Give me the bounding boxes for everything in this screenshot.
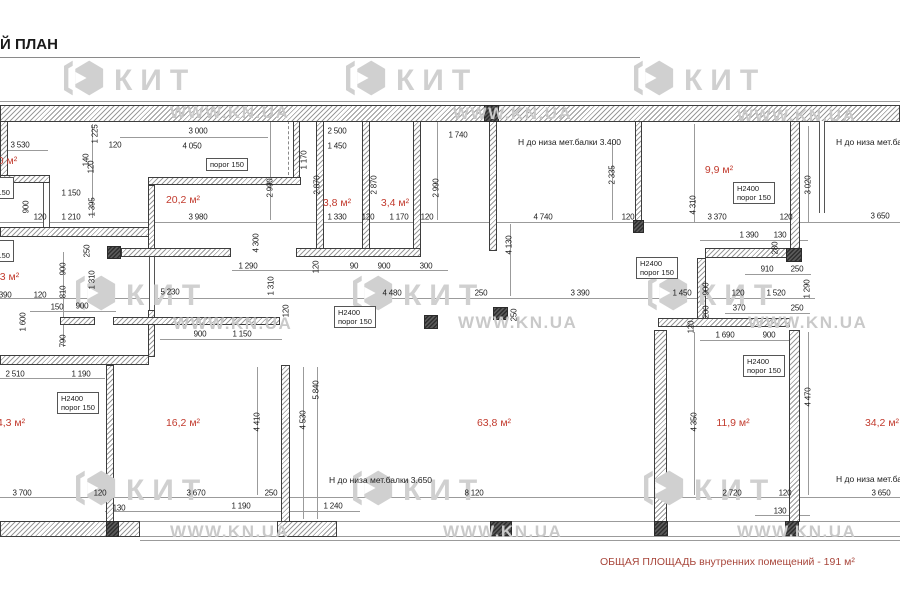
kit-hexagon-icon bbox=[346, 57, 386, 104]
dimension-label: 2 870 bbox=[313, 175, 322, 194]
dimension-label: 1 170 bbox=[389, 213, 408, 222]
watermark-url-text: WWW.KN.UA bbox=[170, 103, 289, 123]
watermark-url-text: WWW.KN.UA bbox=[737, 522, 856, 542]
column bbox=[107, 246, 121, 259]
watermark-url-text: WWW.KN.UA bbox=[443, 522, 562, 542]
dimension-label: 810 bbox=[59, 286, 68, 299]
room-area-label: 16,2 м² bbox=[166, 417, 200, 429]
wall-segment bbox=[296, 248, 421, 257]
dimension-label: 5 840 bbox=[312, 380, 321, 399]
dimension-line bbox=[232, 270, 448, 271]
dimension-label: 1 150 bbox=[232, 330, 251, 339]
dimension-label: 4 130 bbox=[505, 235, 514, 254]
dimension-label: 130 bbox=[774, 507, 787, 516]
dimension-label: 5 230 bbox=[160, 288, 179, 297]
dimension-label: 1 190 bbox=[71, 370, 90, 379]
watermark-kit-logo: КИТ bbox=[648, 272, 780, 319]
dimension-label: 150 bbox=[51, 303, 64, 312]
note-label: Н до низа мет.балки 3.400 bbox=[518, 137, 621, 147]
room-area-label: 9,9 м² bbox=[705, 164, 733, 176]
dimension-line bbox=[303, 367, 304, 519]
threshold-box: порог 150 bbox=[206, 158, 248, 171]
wall-segment bbox=[0, 121, 8, 183]
dimension-line bbox=[160, 339, 282, 340]
dimension-label: 4 530 bbox=[299, 410, 308, 429]
room-area-label: 63,8 м² bbox=[477, 417, 511, 429]
room-area-label: 11,9 м² bbox=[716, 417, 749, 429]
dimension-label: 250 bbox=[510, 309, 519, 322]
room-area-label: 4,3 м² bbox=[0, 417, 25, 429]
wall-segment bbox=[0, 227, 149, 237]
dimension-label: 1 225 bbox=[91, 124, 100, 143]
dimension-label: 3 370 bbox=[707, 213, 726, 222]
dimension-label: 1 520 bbox=[766, 289, 785, 298]
dimension-label: 130 bbox=[113, 504, 126, 513]
dimension-label: 4 300 bbox=[252, 233, 261, 252]
dimension-label: 2 510 bbox=[5, 370, 24, 379]
watermark-logo-text: КИТ bbox=[684, 64, 766, 98]
column bbox=[654, 521, 668, 536]
dimension-label: 4 410 bbox=[253, 412, 262, 431]
watermark-url-text: WWW.KN.UA bbox=[737, 106, 856, 126]
dimension-label: 250 bbox=[475, 289, 488, 298]
room-area-label: ,0 м² bbox=[0, 155, 17, 167]
dimension-label: 2 990 bbox=[432, 178, 441, 197]
dimension-line bbox=[700, 340, 800, 341]
dimension-label: 120 bbox=[732, 289, 745, 298]
watermark-kit-logo: КИТ bbox=[346, 57, 478, 104]
threshold-box: Н2400порог 150 bbox=[636, 257, 678, 279]
room-area-label: ,3 м² bbox=[0, 271, 19, 283]
dimension-label: 1 450 bbox=[672, 289, 691, 298]
threshold-box: Н2400порог 150 bbox=[0, 177, 14, 199]
watermark-logo-text: КИТ bbox=[403, 279, 485, 313]
dimension-label: 250 bbox=[265, 489, 278, 498]
dimension-line bbox=[808, 332, 809, 495]
dimension-label: 1 210 bbox=[61, 213, 80, 222]
dimension-label: 1 290 bbox=[238, 262, 257, 271]
dimension-label: 120 bbox=[687, 321, 696, 334]
dimension-label: 1 450 bbox=[327, 142, 346, 151]
watermark-url-text: WWW.KN.UA bbox=[453, 104, 572, 124]
dimension-label: 250 bbox=[83, 245, 92, 258]
watermark-kit-logo: КИТ bbox=[644, 467, 776, 514]
dimension-label: 120 bbox=[34, 291, 47, 300]
column bbox=[106, 521, 119, 537]
room-area-label: 20,2 м² bbox=[166, 194, 200, 206]
dimension-label: 120 bbox=[94, 489, 107, 498]
watermark-url-text: WWW.KN.UA bbox=[170, 522, 289, 542]
dimension-label: 900 bbox=[702, 283, 711, 296]
wall-segment bbox=[148, 177, 301, 185]
dimension-label: 130 bbox=[774, 231, 787, 240]
dimension-label: 790 bbox=[59, 335, 68, 348]
dimension-label: 1 310 bbox=[88, 270, 97, 289]
watermark-logo-text: КИТ bbox=[396, 64, 478, 98]
dimension-label: 2 500 bbox=[327, 127, 346, 136]
dimension-label: 280 bbox=[771, 242, 780, 255]
dimension-label: 4 310 bbox=[689, 195, 698, 214]
dimension-label: 3 000 bbox=[188, 127, 207, 136]
dimension-label: 1 395 bbox=[88, 197, 97, 216]
column bbox=[633, 220, 644, 233]
dimension-line bbox=[437, 122, 438, 220]
kit-hexagon-icon bbox=[64, 57, 104, 104]
dimension-label: 120 bbox=[34, 213, 47, 222]
dimension-label: 250 bbox=[791, 265, 804, 274]
room-area-label: 3,8 м² bbox=[323, 197, 351, 209]
dimension-line bbox=[120, 137, 268, 138]
wall-segment bbox=[43, 183, 50, 229]
dimension-label: 1 690 bbox=[715, 331, 734, 340]
threshold-box: Н2400порог 150 bbox=[334, 306, 376, 328]
dimension-label: 900 bbox=[76, 302, 89, 311]
watermark-kit-logo: КИТ bbox=[634, 57, 766, 104]
dimension-label: 120 bbox=[312, 261, 321, 274]
watermark-kit-logo: КИТ bbox=[64, 57, 196, 104]
dimension-label: 3 530 bbox=[10, 141, 29, 150]
dimension-label: 3 700 bbox=[12, 489, 31, 498]
dimension-label: 4 350 bbox=[690, 412, 699, 431]
dimension-label: 250 bbox=[791, 304, 804, 313]
dimension-label: 3 390 bbox=[570, 289, 589, 298]
dimension-label: 910 bbox=[761, 265, 774, 274]
dimension-label: 900 bbox=[763, 331, 776, 340]
dimension-label: 120 bbox=[780, 213, 793, 222]
dimension-label: 900 bbox=[194, 330, 207, 339]
dimension-label: 1 240 bbox=[323, 502, 342, 511]
wall-segment bbox=[790, 121, 800, 251]
dimension-label: 900 bbox=[378, 262, 391, 271]
wall-segment bbox=[281, 365, 290, 522]
column bbox=[786, 248, 802, 262]
dimension-label: 120 bbox=[282, 305, 291, 318]
dimension-label: 4 740 bbox=[533, 213, 552, 222]
wall-segment bbox=[413, 121, 421, 253]
dimension-label: 1 190 bbox=[231, 502, 250, 511]
dimension-label: 370 bbox=[733, 304, 746, 313]
kit-hexagon-icon bbox=[634, 57, 674, 104]
wall-segment bbox=[635, 121, 642, 221]
dimension-label: 120 bbox=[622, 213, 635, 222]
dimension-label: 1 390 bbox=[739, 231, 758, 240]
dimension-label: 1 290 bbox=[803, 279, 812, 298]
wall-segment bbox=[121, 248, 231, 257]
dimension-label: 200 bbox=[702, 306, 711, 319]
dimension-label: 140 bbox=[82, 154, 91, 167]
wall-segment bbox=[819, 121, 825, 213]
dimension-label: 1 600 bbox=[19, 312, 28, 331]
dimension-label: 3 670 bbox=[186, 489, 205, 498]
dimension-label: 900 bbox=[22, 201, 31, 214]
dimension-label: 1 150 bbox=[61, 189, 80, 198]
plan-title: Й ПЛАН bbox=[0, 36, 58, 53]
threshold-box: Н2400порог 150 bbox=[743, 355, 785, 377]
dimension-line bbox=[0, 222, 900, 223]
dimension-label: 3 650 bbox=[870, 212, 889, 221]
total-area-label: ОБЩАЯ ПЛОЩАДЬ внутренних помещений - 191… bbox=[600, 556, 855, 568]
dimension-label: 120 bbox=[109, 141, 122, 150]
wall-segment bbox=[489, 121, 497, 251]
dimension-label: 120 bbox=[779, 489, 792, 498]
dimension-label: 3 980 bbox=[188, 213, 207, 222]
dimension-label: 90 bbox=[350, 262, 359, 271]
dimension-label: 3 650 bbox=[871, 489, 890, 498]
dimension-label: 300 bbox=[420, 262, 433, 271]
floor-plan: Й ПЛАН ОБЩАЯ ПЛОЩАДЬ внутренних помещени… bbox=[0, 0, 900, 600]
dimension-label: 3 020 bbox=[804, 175, 813, 194]
dimension-label: 4 480 bbox=[382, 289, 401, 298]
dimension-label: 1 310 bbox=[267, 276, 276, 295]
dimension-label: 900 bbox=[59, 263, 68, 276]
kit-hexagon-icon bbox=[644, 467, 684, 514]
wall-segment bbox=[0, 521, 140, 537]
watermark-logo-text: КИТ bbox=[114, 64, 196, 98]
dimension-label: 4 470 bbox=[804, 387, 813, 406]
room-area-label: 3,4 м² bbox=[381, 197, 409, 209]
dimension-label: 1 170 bbox=[300, 150, 309, 169]
dimension-label: 1 740 bbox=[448, 131, 467, 140]
dimension-line bbox=[808, 126, 809, 222]
note-label: Н до низа мет.балки 3.650 bbox=[329, 475, 432, 485]
dimension-label: 120 bbox=[362, 213, 375, 222]
dimension-label: 1 330 bbox=[327, 213, 346, 222]
dimension-label: 2 720 bbox=[722, 489, 741, 498]
note-label: Н до низа мет.ба bbox=[836, 137, 900, 147]
wall-segment bbox=[148, 185, 155, 251]
threshold-box: Н2400порог 150 bbox=[0, 240, 14, 262]
dimension-label: 1 390 bbox=[0, 291, 12, 300]
dimension-label: 120 bbox=[421, 213, 434, 222]
threshold-box: Н2400порог 150 bbox=[57, 392, 99, 414]
dimension-line bbox=[270, 122, 271, 220]
note-label: Н до низа мет.ба bbox=[836, 474, 900, 484]
dimension-label: 2 870 bbox=[370, 175, 379, 194]
threshold-box: Н2400порог 150 bbox=[733, 182, 775, 204]
dimension-label: 8 120 bbox=[464, 489, 483, 498]
dimension-label: 2 990 bbox=[266, 178, 275, 197]
room-area-label: 34,2 м² bbox=[865, 417, 899, 429]
dimension-label: 2 335 bbox=[608, 165, 617, 184]
dimension-label: 4 050 bbox=[182, 142, 201, 151]
wall-segment bbox=[0, 355, 149, 365]
